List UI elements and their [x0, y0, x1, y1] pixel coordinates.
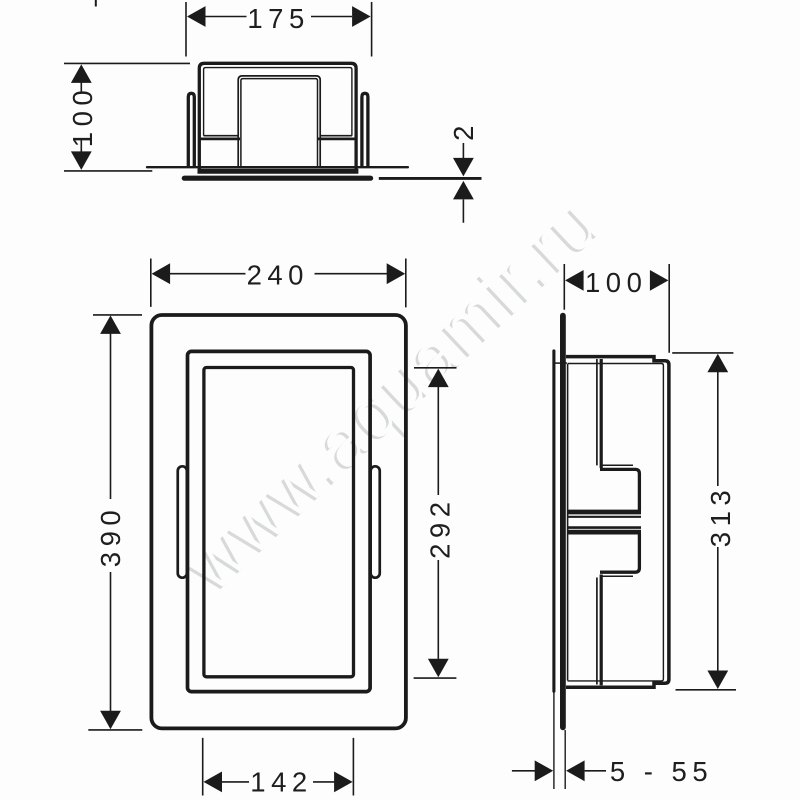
svg-text:2: 2	[448, 120, 479, 141]
svg-text:240: 240	[247, 260, 309, 291]
svg-text:142: 142	[250, 767, 312, 798]
svg-text:100: 100	[67, 85, 98, 147]
svg-text:100: 100	[585, 267, 647, 298]
svg-text:313: 313	[705, 485, 736, 547]
svg-text:175: 175	[247, 3, 309, 34]
svg-text:292: 292	[424, 497, 455, 559]
svg-text:390: 390	[95, 505, 126, 567]
svg-text:5 - 55: 5 - 55	[610, 756, 713, 787]
